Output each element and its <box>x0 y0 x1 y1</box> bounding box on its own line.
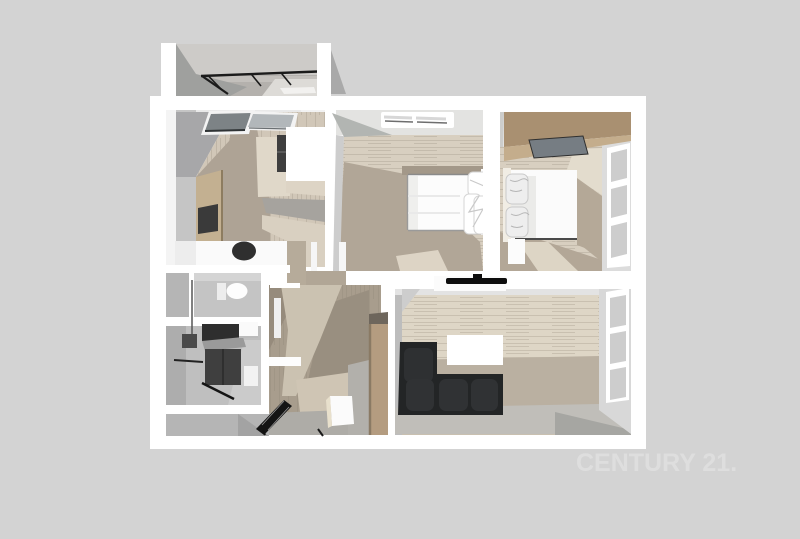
svg-text:CENTURY 21.: CENTURY 21. <box>576 449 737 477</box>
